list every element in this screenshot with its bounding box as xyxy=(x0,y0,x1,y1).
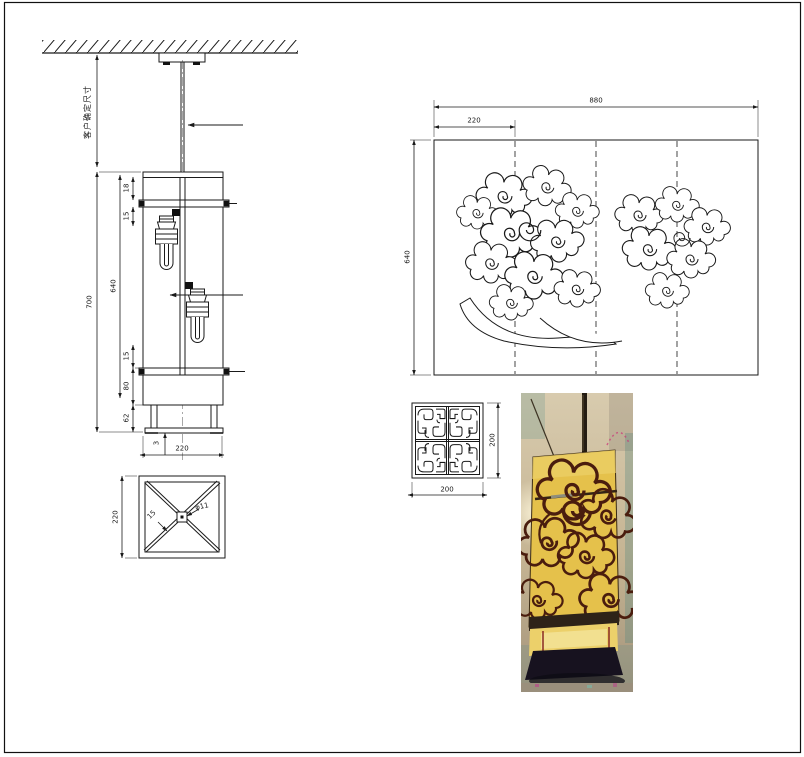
plan-view-drawing xyxy=(122,476,225,558)
dim-upper-gap: 15 xyxy=(124,211,131,222)
cad-linework xyxy=(0,0,804,757)
dim-panel-height: 640 xyxy=(405,249,412,264)
dim-base-height: 62 xyxy=(124,413,131,424)
dim-top-band: 18 xyxy=(124,183,131,194)
dim-lower-band: 80 xyxy=(124,381,131,392)
dim-ornament-width: 200 xyxy=(439,487,454,494)
lantern-photo xyxy=(521,393,633,692)
dim-panel-total-width: 880 xyxy=(588,98,603,105)
pendant-length-note: 客户确定尺寸 xyxy=(84,84,92,140)
dim-body-height: 640 xyxy=(111,278,118,293)
dim-lower-gap: 15 xyxy=(124,351,131,362)
dim-panel-segment: 220 xyxy=(466,118,481,125)
dim-overall-height: 700 xyxy=(87,294,94,309)
dim-plan-side: 220 xyxy=(113,509,120,524)
cloud-pattern-panel xyxy=(410,100,758,375)
ornament-detail-drawing xyxy=(408,403,501,498)
dim-ornament-height: 200 xyxy=(490,432,497,447)
dim-body-width: 220 xyxy=(174,446,189,453)
ceiling-hatch xyxy=(42,40,298,53)
drawing-sheet: 客户确定尺寸 700 640 18 15 15 80 62 3 220 220 … xyxy=(0,0,804,757)
lantern-photo-art xyxy=(521,393,633,692)
dim-plate-thickness: 3 xyxy=(154,440,161,446)
elevation-drawing xyxy=(42,40,298,462)
sheet-border xyxy=(5,3,801,753)
